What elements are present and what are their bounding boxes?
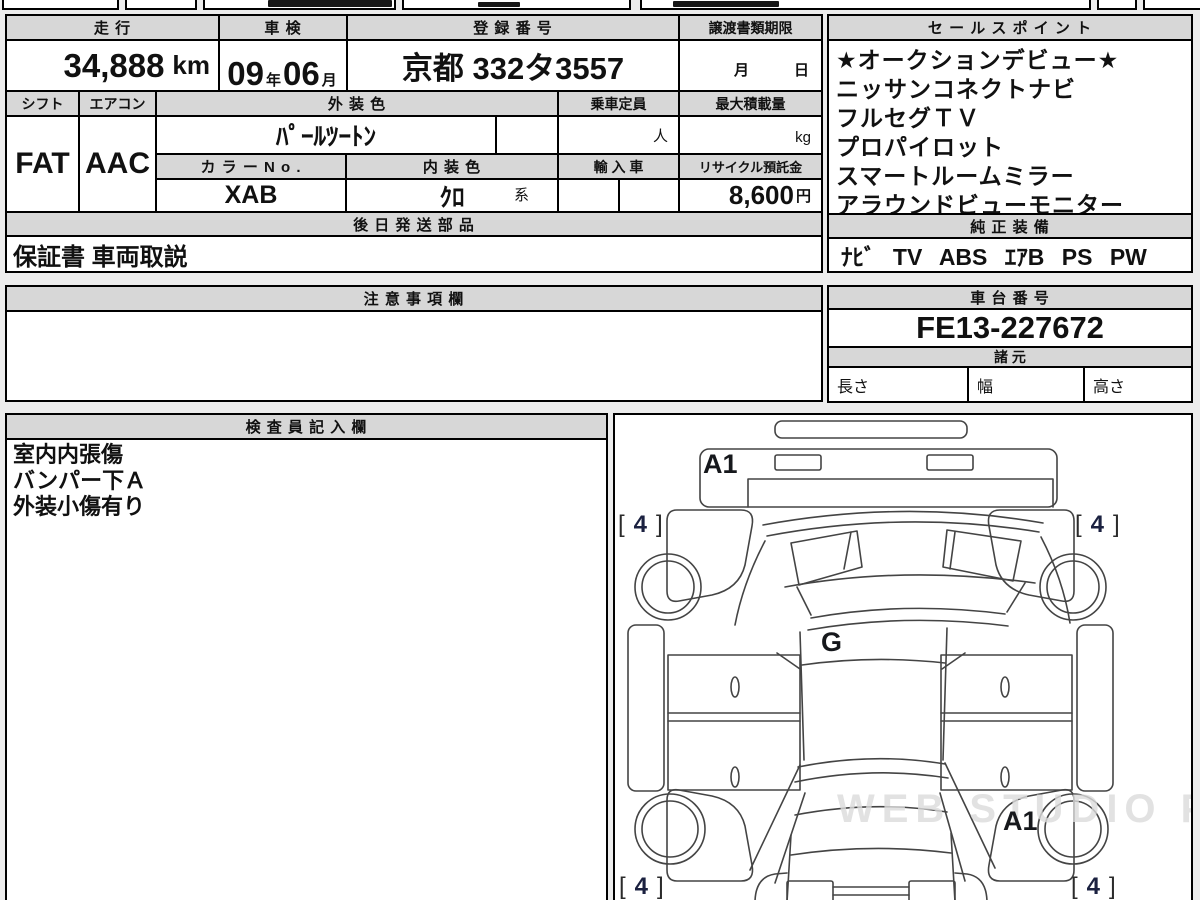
recycle-unit: 円 [796,185,811,206]
chassis-header: 車 台 番 号 [827,285,1193,310]
inspector-note: バンパー下Ａ [13,468,600,494]
interior-color-header: 内 装 色 [345,153,559,180]
exterior-color-value: ﾊﾟｰﾙﾂｰﾄﾝ [155,115,497,155]
later-parts-value: 保証書 車両取説 [5,235,823,273]
inspection-header: 車 検 [218,14,348,41]
notes-body [5,310,823,402]
inspector-note: 外装小傷有り [13,494,600,520]
transfer-docs-value: 月 日 [678,39,823,92]
mileage-value: 34,888km [5,39,220,92]
import-value-cell [618,178,680,213]
sales-point-item: スマートルームミラー [836,162,1184,191]
exterior-color-header: 外 装 色 [155,90,559,117]
inspector-body: 室内内張傷 バンパー下Ａ 外装小傷有り [5,438,608,900]
truncated-text-remnant [673,1,779,7]
sales-points-body: ★オークションデビュー★ ニッサンコネクトナビ フルセグＴＶ プロパイロット ス… [827,39,1193,215]
shift-value: FAT [5,115,80,213]
bracket-open: [ [1071,873,1078,900]
inspection-year-unit: 年 [266,69,281,90]
truncated-text-remnant [478,2,520,7]
bracket-close: ] [656,511,663,538]
tire-depth-rear-left: [4] [619,873,664,900]
aircon-header: エアコン [78,90,157,117]
car-diagram: WEB STUDIO PRO A1 G A1 [4] [4] [4] [4] [613,413,1193,900]
inspector-header: 検 査 員 記 入 欄 [5,413,608,440]
sales-point-item: フルセグＴＶ [836,104,1184,133]
sales-point-item: ★オークションデビュー★ [836,46,1184,75]
recycle-amount: 8,600 [729,180,794,211]
specs-header: 諸 元 [827,346,1193,368]
top-truncated-cell [1097,0,1137,10]
inspection-value: 09年06月 [218,39,348,92]
auction-sheet: 走 行 車 検 登 録 番 号 譲渡書類期限 34,888km 09年06月 京… [0,0,1200,900]
shift-header: シフト [5,90,80,117]
color-no-header: カ ラ ー N o . [155,153,347,180]
mileage-header: 走 行 [5,14,220,41]
factory-equipment-value: ﾅﾋﾞ TV ABS ｴｱB PS PW [827,237,1193,273]
recycle-value: 8,600円 [678,178,823,213]
chassis-value: FE13-227672 [827,308,1193,348]
interior-color-suffix: 系 [514,184,529,205]
spec-width-cell: 幅 [967,366,1085,403]
tire-depth-front-right: [4] [1075,511,1120,539]
import-value-cell [557,178,620,213]
inspection-month-unit: 月 [322,69,337,90]
top-truncated-cell [2,0,119,10]
capacity-header: 乗車定員 [557,90,680,117]
damage-code-rear-quarter: A1 [1003,806,1038,837]
interior-color-name: ｸﾛ [439,178,464,214]
bracket-close: ] [657,873,664,900]
top-truncated-cell [1143,0,1200,10]
spec-length-cell: 長さ [827,366,969,403]
inspection-month: 06 [283,55,320,93]
aircon-value: AAC [78,115,157,213]
max-load-header: 最大積載量 [678,90,823,117]
registration-header: 登 録 番 号 [346,14,680,41]
factory-equipment-header: 純 正 装 備 [827,213,1193,239]
max-load-value: kg [678,115,823,155]
tire-depth-value: 4 [1087,873,1100,900]
sales-point-item: ニッサンコネクトナビ [836,75,1184,104]
tire-depth-rear-right: [4] [1071,873,1116,900]
exterior-color-extra-cell [495,115,559,155]
tire-depth-value: 4 [634,511,647,538]
damage-code-front-panel: A1 [703,449,738,480]
interior-color-value: ｸﾛ 系 [345,178,559,213]
sales-point-item: プロパイロット [836,133,1184,162]
capacity-value: 人 [557,115,680,155]
top-truncated-cell [125,0,197,10]
import-header: 輸 入 車 [557,153,680,180]
bracket-close: ] [1113,511,1120,538]
transfer-docs-header: 譲渡書類期限 [678,14,823,41]
registration-value: 京都 332タ3557 [346,39,680,92]
inspector-note: 室内内張傷 [13,442,600,468]
truncated-text-remnant [268,0,392,7]
later-parts-header: 後 日 発 送 部 品 [5,211,823,237]
damage-code-gate: G [821,627,842,658]
bracket-open: [ [618,511,625,538]
bracket-close: ] [1109,873,1116,900]
bracket-open: [ [619,873,626,900]
mileage-number: 34,888 [63,47,164,85]
sales-points-header: セ ー ル ス ポ イ ン ト [827,14,1193,41]
spec-height-cell: 高さ [1083,366,1193,403]
tire-depth-value: 4 [635,873,648,900]
inspection-year: 09 [227,55,264,93]
recycle-header: リサイクル預託金 [678,153,823,180]
bracket-open: [ [1075,511,1082,538]
tire-depth-front-left: [4] [618,511,663,539]
mileage-unit: km [172,50,210,81]
notes-header: 注 意 事 項 欄 [5,285,823,312]
tire-depth-value: 4 [1091,511,1104,538]
color-no-value: XAB [155,178,347,213]
